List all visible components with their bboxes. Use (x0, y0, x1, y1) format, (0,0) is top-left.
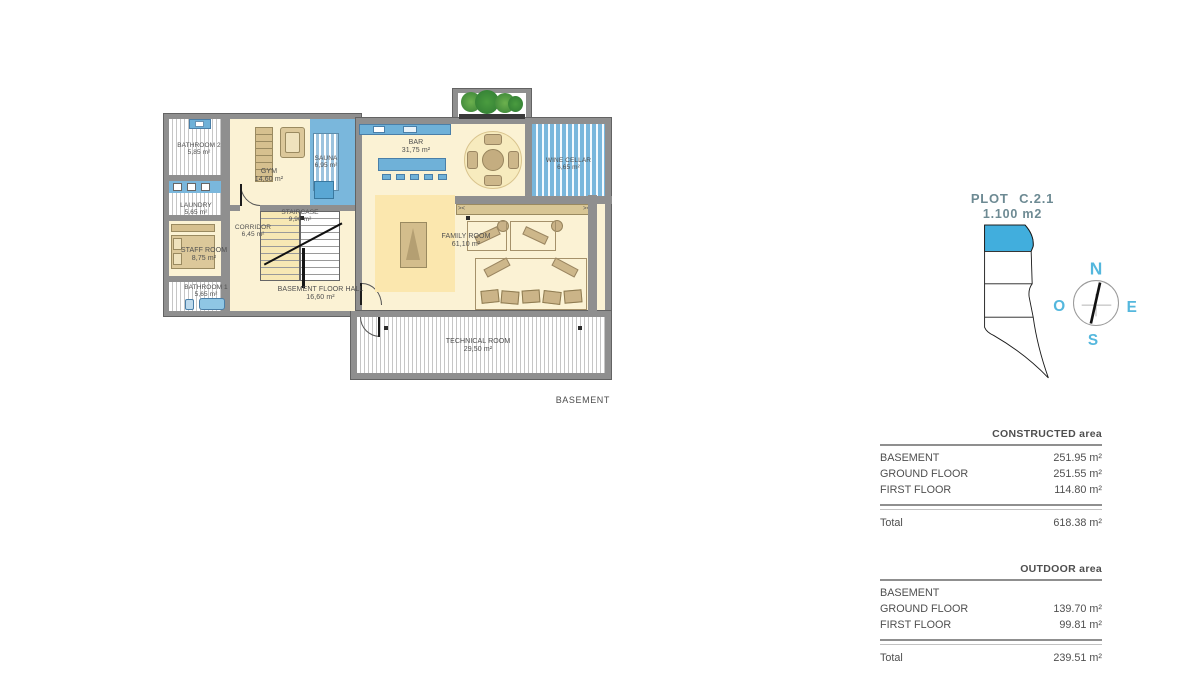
row-label: BASEMENT (880, 450, 939, 466)
dining-chair-icon (467, 151, 478, 169)
room-name: LAUNDRY (168, 202, 224, 209)
room-name: BATHROOM 1 (176, 284, 236, 291)
bathtub-icon (199, 298, 225, 310)
room-name: SAUNA (304, 155, 348, 162)
row-label: FIRST FLOOR (880, 617, 951, 633)
total-value: 239.51 m² (1053, 650, 1102, 666)
dining-table-icon (482, 149, 504, 171)
bar-stool-icon (424, 174, 433, 180)
staircase-rail (302, 248, 305, 288)
dryer-icon (187, 183, 196, 191)
room-label-laundry: LAUNDRY 5,65 m² (168, 202, 224, 217)
table-row: BASEMENT (880, 585, 1102, 601)
row-value: 114.80 m² (1054, 482, 1102, 498)
table-header: CONSTRUCTED area (880, 428, 1102, 444)
table-row: GROUND FLOOR 251.55 m² (880, 466, 1102, 482)
wall-marker (578, 326, 582, 330)
room-label-technical-room: TECHNICAL ROOM 29,50 m² (428, 338, 528, 354)
total-label: Total (880, 650, 903, 666)
room-label-bar: BAR 31,75 m² (386, 139, 446, 155)
table-total-row: Total 239.51 m² (880, 650, 1102, 666)
table-row: FIRST FLOOR 99.81 m² (880, 617, 1102, 633)
gym-wall-segment (230, 205, 240, 211)
room-label-sauna: SAUNA 6,95 m² (304, 155, 348, 170)
compass-rose: N E S O (1050, 255, 1142, 347)
room-area: 9,90 m² (270, 216, 330, 223)
room-label-staircase: STAIRCASE 9,90 m² (270, 209, 330, 224)
plot-basement-section (985, 225, 1034, 251)
room-label-bathroom1: BATHROOM 1 5,65 m² (176, 284, 236, 299)
sofa-cushion (551, 257, 578, 277)
treadmill-belt-icon (285, 132, 300, 153)
bar-cooktop-icon (403, 126, 417, 133)
compass-south: S (1088, 332, 1098, 347)
room-area: 8,75 m² (174, 255, 234, 263)
plunge-tub-icon (314, 181, 334, 199)
family-room-right-wall (588, 195, 597, 317)
row-value: 251.55 m² (1053, 466, 1102, 482)
tv-console (456, 204, 594, 215)
sectional-sofa-icon (475, 258, 587, 310)
sofa-pillow (542, 290, 561, 305)
row-label: BASEMENT (880, 585, 939, 601)
plot-area: 1.100 m2 (930, 207, 1095, 221)
wall-marker (466, 216, 470, 220)
table-rule (880, 639, 1102, 645)
technical-door-leaf (378, 317, 380, 337)
sofa-pillow (563, 289, 582, 304)
room-area: 5,65 m² (168, 209, 224, 216)
total-value: 618.38 m² (1053, 515, 1102, 531)
room-label-bathroom2: BATHROOM 2 5,85 m² (167, 142, 231, 157)
table-rule (880, 504, 1102, 510)
section-mark: >< (458, 205, 466, 213)
bar-stool-icon (410, 174, 419, 180)
bathroom2-basin-icon (195, 121, 204, 127)
compass-north: N (1090, 258, 1103, 278)
room-area: 29,50 m² (428, 346, 528, 354)
room-name: CORRIDOR (223, 224, 283, 231)
room-name: TECHNICAL ROOM (428, 338, 528, 346)
gym-door-leaf (240, 184, 242, 206)
room-name: FAMILY ROOM (431, 233, 501, 241)
constructed-area-table: CONSTRUCTED area BASEMENT 251.95 m² GROU… (880, 428, 1102, 531)
room-area: 6,95 m² (304, 162, 348, 169)
compass-east: E (1127, 299, 1137, 316)
bar-stool-icon (438, 174, 447, 180)
room-name: BATHROOM 2 (167, 142, 231, 149)
room-area: 14,60 m² (239, 176, 299, 184)
laundry-sink-icon (201, 183, 210, 191)
bar-island-counter (378, 158, 446, 171)
total-label: Total (880, 515, 903, 531)
room-area: 5,65 m² (176, 291, 236, 298)
row-value: 139.70 m² (1053, 601, 1102, 617)
room-area: 5,85 m² (167, 149, 231, 156)
room-name: STAFF ROOM (174, 247, 234, 255)
floor-caption: BASEMENT (528, 395, 610, 405)
page: >< >< BATHROOM (0, 0, 1190, 683)
wardrobe-icon (171, 224, 215, 232)
room-label-basement-floor-hall: BASEMENT FLOOR HALL 16,60 m² (258, 286, 383, 302)
dining-chair-icon (484, 134, 502, 145)
room-name: STAIRCASE (270, 209, 330, 216)
sofa-pillow (480, 289, 499, 304)
outdoor-area-table: OUTDOOR area BASEMENT GROUND FLOOR 139.7… (880, 563, 1102, 666)
plot-name: PLOT C.2.1 (930, 191, 1095, 206)
plant-icon (508, 96, 523, 112)
table-row: GROUND FLOOR 139.70 m² (880, 601, 1102, 617)
compass-needle-icon (1091, 283, 1100, 324)
row-value: 99.81 m² (1059, 617, 1102, 633)
room-label-family-room: FAMILY ROOM 61,10 m² (431, 233, 501, 249)
bar-stool-icon (396, 174, 405, 180)
row-label: GROUND FLOOR (880, 466, 968, 482)
plot-shape-diagram (975, 220, 1060, 382)
dining-chair-icon (508, 151, 519, 169)
armchair-icon (510, 221, 556, 251)
row-label: GROUND FLOOR (880, 601, 968, 617)
room-label-corridor: CORRIDOR 6,45 m² (223, 224, 283, 239)
dining-chair-icon (484, 175, 502, 186)
washer-icon (173, 183, 182, 191)
bar-sink-icon (373, 126, 385, 133)
room-area: 61,10 m² (431, 241, 501, 249)
sofa-pillow (522, 289, 541, 303)
room-area: 16,60 m² (258, 294, 383, 302)
room-area: 6,45 m² (223, 231, 283, 238)
room-area: 6,65 m² (532, 164, 605, 171)
room-area: 31,75 m² (386, 147, 446, 155)
room-name: BAR (386, 139, 446, 147)
compass-west: O (1053, 298, 1065, 315)
table-header: OUTDOOR area (880, 563, 1102, 579)
room-label-gym: GYM 14,60 m² (239, 168, 299, 184)
room-name: GYM (239, 168, 299, 176)
bar-stool-icon (382, 174, 391, 180)
sofa-cushion (483, 257, 510, 277)
table-row: FIRST FLOOR 114.80 m² (880, 482, 1102, 498)
wine-cellar-wall (525, 124, 532, 200)
planter-trough-icon (459, 114, 525, 119)
plot-title: PLOT C.2.1 1.100 m2 (930, 191, 1095, 221)
table-total-row: Total 618.38 m² (880, 515, 1102, 531)
wall-marker (384, 326, 388, 330)
room-name: BASEMENT FLOOR HALL (258, 286, 383, 294)
basement-floor-plan: >< >< BATHROOM (163, 88, 613, 383)
armchair-cushion (522, 226, 548, 245)
table-row: BASEMENT 251.95 m² (880, 450, 1102, 466)
row-value: 251.95 m² (1053, 450, 1102, 466)
room-label-staff-room: STAFF ROOM 8,75 m² (174, 247, 234, 263)
row-label: FIRST FLOOR (880, 482, 951, 498)
room-label-wine-cellar: WINE CELLAR 6,65 m² (532, 157, 605, 172)
sofa-pillow (500, 290, 519, 305)
toilet-icon (185, 299, 194, 310)
room-name: WINE CELLAR (532, 157, 605, 164)
